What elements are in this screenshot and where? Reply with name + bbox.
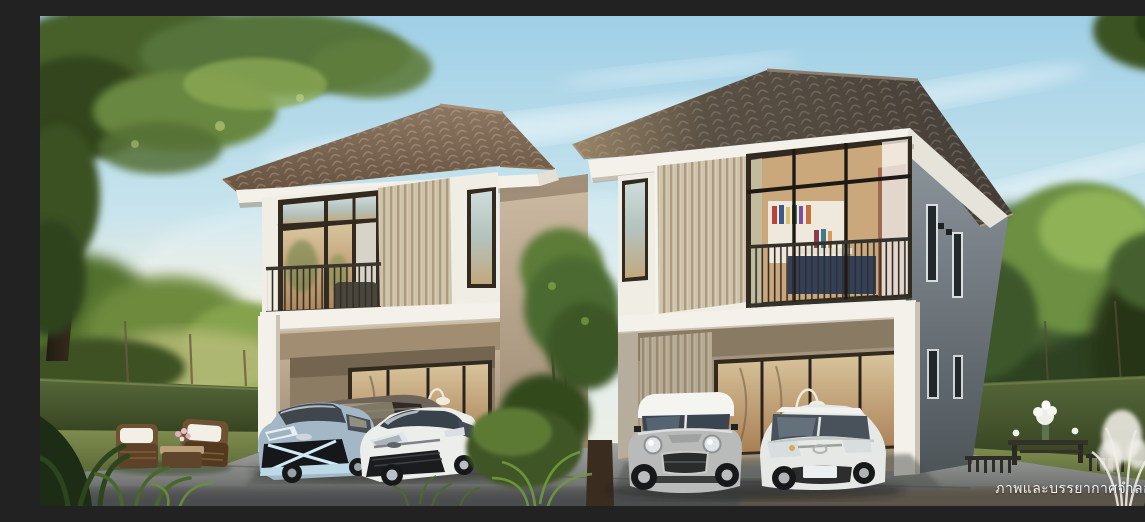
left-house-upper-floor xyxy=(260,172,500,334)
right-house-balcony-railing xyxy=(749,237,909,308)
hedge-left xyxy=(40,378,278,438)
right-house-upper-floor xyxy=(618,136,916,336)
render-canvas xyxy=(40,16,1145,506)
architectural-rendering: ภาพและบรรยากาศจำลอง xyxy=(40,16,1145,506)
watermark-text: ภาพและบรรยากาศจำลอง xyxy=(995,478,1145,500)
car-jazz-hatchback xyxy=(760,404,886,490)
car-mini-cooper xyxy=(628,392,742,493)
left-house-narrow-window xyxy=(467,187,496,288)
right-house-narrow-window xyxy=(622,178,648,282)
